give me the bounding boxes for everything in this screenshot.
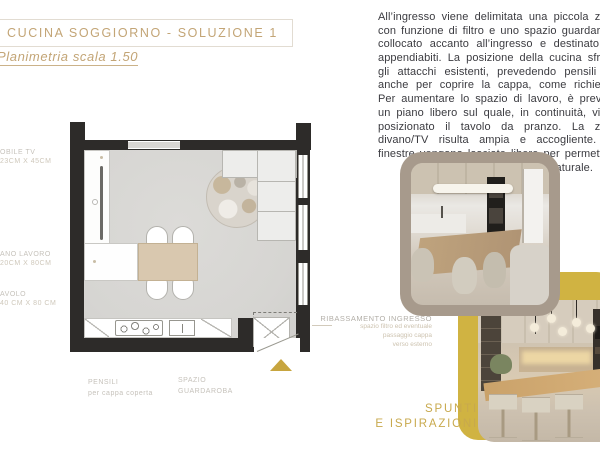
hob-icon [115,320,163,336]
label-pensili: PENSILI [88,379,118,388]
inspiration-photo-2 [478,300,600,442]
inspiration-caption-line2: E ISPIRAZIONI [352,418,478,431]
photo-chair [411,248,434,282]
label-pensili-note: per cappa coperta [88,390,153,399]
photo-sofa-arm [510,245,549,305]
entrance-arrow-icon [270,359,292,371]
photo-window [522,169,543,243]
label-ribassamento-note1: spazio filtro ed eventuale [320,323,432,332]
sink-icon [169,320,195,336]
inspiration-caption: SPUNTI E ISPIRAZIONI [352,403,478,431]
plan-window-3 [298,263,308,305]
plan-wall-stub-topleft [70,122,85,150]
photo-chair [483,252,506,288]
plan-top-window [128,141,180,149]
photo-plant [490,354,512,374]
plan-wall-left [70,140,84,352]
label-mobile-tv-name: OBILE TV [0,149,51,158]
photo-faucet [441,206,443,219]
label-pensili-name: PENSILI [88,379,118,388]
plan-sofa [257,150,296,241]
label-ribassamento-note2: passaggio cappa [320,332,432,341]
inspiration-photo-1-frame [400,152,560,316]
photo-bar-stool [522,397,550,442]
plan-scale-subtitle: Planimetria scala 1.50 [0,49,138,66]
description-paragraph: All’ingresso viene delimitata una piccol… [378,11,600,175]
plan-wall-stub-topright [296,123,311,150]
label-ribassamento-note3: verso esterno [320,341,432,350]
plan-tv-unit [84,150,110,255]
plan-cabinet [201,319,231,337]
plan-wall-bottom [70,338,254,352]
plan-window-1 [298,155,308,198]
plan-window-2 [298,205,308,250]
photo-chair [452,257,477,294]
label-tavolo: AVOLO 40 CM X 80 CM [0,291,56,309]
label-tavolo-name: AVOLO [0,291,56,300]
label-mobile-tv-size: 23CM X 45CM [0,158,51,167]
photo-under-cabinet-light [522,351,591,364]
presentation-page: CUCINA SOGGIORNO - SOLUZIONE 1 Planimetr… [0,0,600,460]
label-mobile-tv: OBILE TV 23CM X 45CM [0,149,51,167]
plan-dashed-ceiling-line [253,312,297,313]
inspiration-caption-line1: SPUNTI [352,403,478,416]
label-piano-lavoro-size: 20CM X 80CM [0,260,51,269]
label-tavolo-size: 40 CM X 80 CM [0,300,56,309]
plan-wall-corner [300,338,310,352]
label-guardaroba-line1: SPAZIO [178,377,206,386]
photo-bar-stool [489,394,517,439]
floor-plan [60,115,320,385]
label-guardaroba: SPAZIO [178,377,206,386]
plan-dining-table [138,243,198,281]
leader-dot [93,260,96,263]
plan-kitchen-counter [84,318,232,338]
tap-icon [182,324,183,333]
photo-pendant-bar-light [433,184,513,193]
photo-bar-stool [555,394,583,439]
label-piano-lavoro-name: ANO LAVORO [0,251,51,260]
inspiration-photo-1 [411,163,549,305]
label-piano-lavoro: ANO LAVORO 20CM X 80CM [0,251,51,269]
plan-wall-top [70,140,310,150]
label-guardaroba-line2: GUARDAROBA [178,388,233,397]
photo-shelving [481,303,502,391]
pendant-globe [586,324,595,333]
leader-dot [100,156,103,159]
pendant-globe [558,327,567,336]
photo-counter [411,214,466,232]
plan-cabinet [85,319,109,337]
tv-icon [100,166,103,240]
tv-knob-icon [92,199,98,205]
plan-wall-stub-bottom [238,318,253,352]
label-ribassamento-title: RIBASSAMENTO INGRESSO [320,314,432,323]
label-ribassamento: RIBASSAMENTO INGRESSO spazio filtro ed e… [320,314,432,349]
page-title: CUCINA SOGGIORNO - SOLUZIONE 1 [0,19,293,47]
